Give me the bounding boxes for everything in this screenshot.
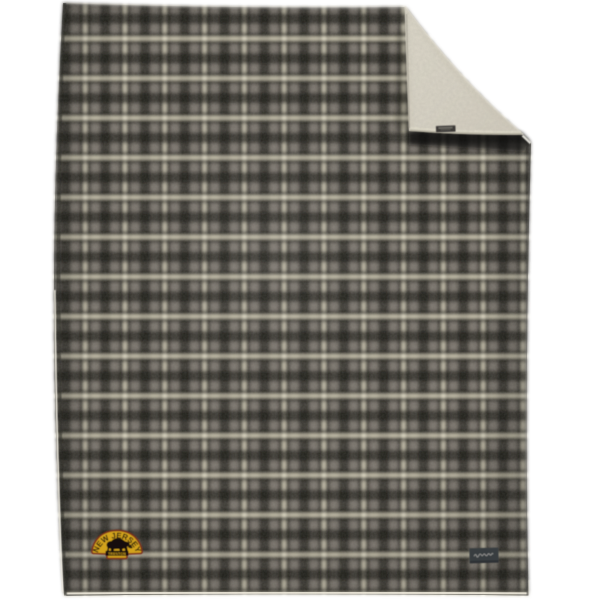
svg-text:TRENTON: TRENTON bbox=[108, 552, 126, 556]
